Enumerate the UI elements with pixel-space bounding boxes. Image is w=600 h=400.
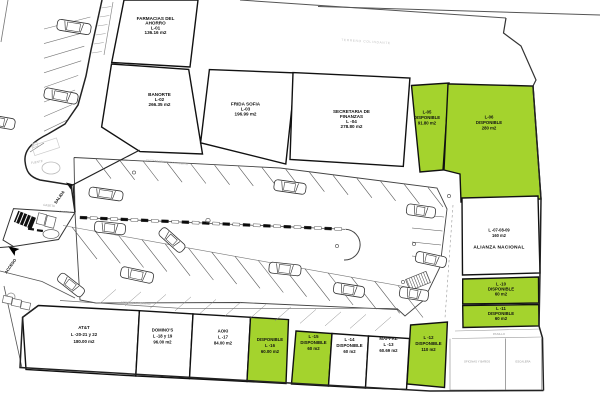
svg-text:ALIANZA NACIONAL: ALIANZA NACIONAL <box>473 245 524 250</box>
svg-text:AOKI: AOKI <box>218 329 229 334</box>
svg-text:91.80 m2: 91.80 m2 <box>418 121 437 126</box>
svg-text:136.16 m2: 136.16 m2 <box>145 30 167 35</box>
svg-text:L -14: L -14 <box>345 337 356 342</box>
svg-text:L-06: L-06 <box>485 115 494 120</box>
svg-text:180.00 m2: 180.00 m2 <box>74 339 96 344</box>
svg-text:L -16: L -16 <box>265 343 276 348</box>
svg-text:60 m2: 60 m2 <box>495 316 508 321</box>
svg-text:84.00 m2: 84.00 m2 <box>214 341 233 346</box>
svg-text:AT&T: AT&T <box>78 325 90 330</box>
svg-text:PASILLO: PASILLO <box>493 332 506 336</box>
svg-text:60 m2: 60 m2 <box>307 346 320 351</box>
svg-text:L -18 y 19: L -18 y 19 <box>153 334 173 339</box>
svg-text:280 m2: 280 m2 <box>482 126 497 131</box>
svg-text:L -15: L -15 <box>309 334 320 339</box>
svg-text:L -07-08-09: L -07-08-09 <box>488 228 510 233</box>
svg-text:DISPONIBLE: DISPONIBLE <box>257 337 283 342</box>
svg-text:MAPFRE: MAPFRE <box>379 336 397 341</box>
svg-text:DISPONIBLE: DISPONIBLE <box>300 340 326 345</box>
svg-text:60.00 m2: 60.00 m2 <box>261 349 280 354</box>
svg-text:OFICINAS Y BAÑOS: OFICINAS Y BAÑOS <box>464 359 490 364</box>
svg-text:L -12: L -12 <box>424 335 435 340</box>
svg-text:96.00 m2: 96.00 m2 <box>153 340 172 345</box>
svg-text:ESCALERA: ESCALERA <box>516 360 531 364</box>
svg-text:60 m2: 60 m2 <box>495 292 508 297</box>
svg-text:60 m2: 60 m2 <box>343 349 356 354</box>
svg-text:L -13: L -13 <box>384 342 395 347</box>
svg-text:L -17: L -17 <box>218 335 229 340</box>
svg-text:DISPONIBLE: DISPONIBLE <box>415 341 441 346</box>
svg-text:DOMINO'S: DOMINO'S <box>152 328 174 333</box>
svg-text:L -20-21 y 22: L -20-21 y 22 <box>71 332 98 337</box>
svg-text:160 m2: 160 m2 <box>492 233 507 238</box>
svg-text:196.99 m2: 196.99 m2 <box>235 112 257 117</box>
svg-text:DISPONIBLE: DISPONIBLE <box>414 115 440 120</box>
svg-text:L-05: L-05 <box>423 110 432 115</box>
svg-text:DISPONIBLE: DISPONIBLE <box>336 343 362 348</box>
svg-text:60.69 m2: 60.69 m2 <box>379 348 398 353</box>
svg-text:278.80 m2: 278.80 m2 <box>341 124 363 129</box>
svg-text:110 m2: 110 m2 <box>421 347 436 352</box>
svg-text:266.35 m2: 266.35 m2 <box>149 102 171 107</box>
svg-text:DISPONIBLE: DISPONIBLE <box>476 120 502 125</box>
